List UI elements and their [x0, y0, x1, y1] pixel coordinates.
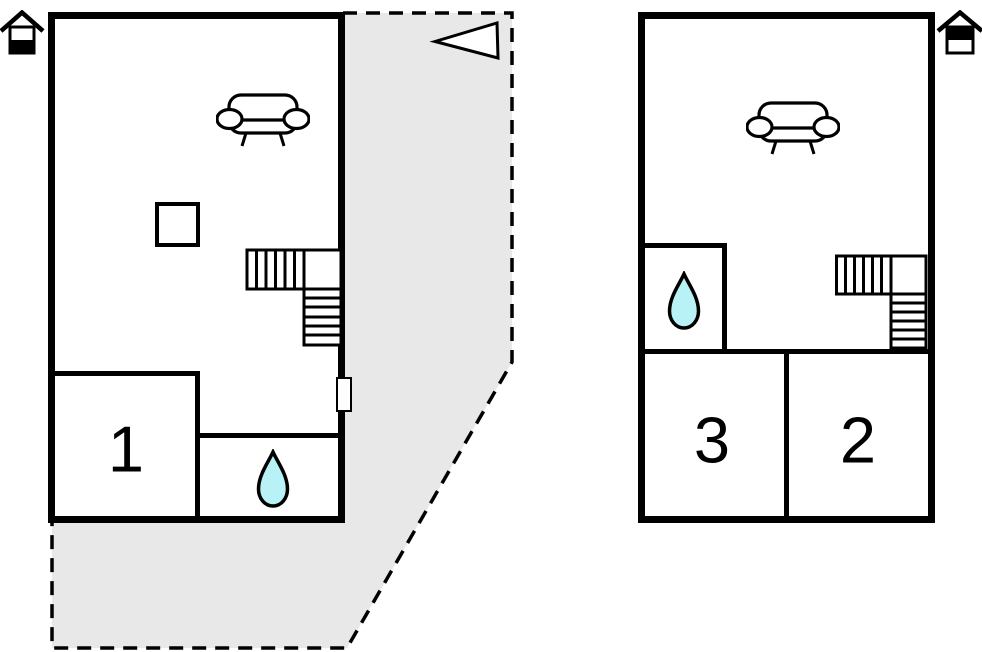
bathroom-right-wall	[722, 243, 727, 354]
sofa-icon	[216, 92, 310, 148]
bathroom-top-wall	[645, 243, 726, 248]
floor-plan-canvas: 1	[0, 0, 982, 652]
room-2-label: 2	[840, 408, 876, 473]
house-ground-floor-icon	[0, 10, 46, 58]
room-1-right-wall	[195, 371, 200, 516]
water-drop-icon	[666, 271, 702, 331]
ground-floor-plan: 1	[48, 12, 345, 523]
terrace-door	[336, 377, 352, 412]
sofa-icon	[746, 100, 840, 156]
table-icon	[155, 202, 200, 247]
water-drop-icon	[255, 449, 291, 509]
stairs-icon	[245, 248, 345, 348]
room-1-label: 1	[108, 417, 144, 482]
stairs-icon	[835, 254, 928, 350]
bathroom-top-wall	[195, 433, 338, 438]
room-3-label: 3	[694, 408, 730, 473]
room-divider-wall	[784, 354, 789, 516]
house-upper-floor-icon	[936, 10, 982, 58]
room-1-top-wall	[55, 371, 200, 376]
upper-floor-plan: 3 2	[638, 12, 935, 523]
